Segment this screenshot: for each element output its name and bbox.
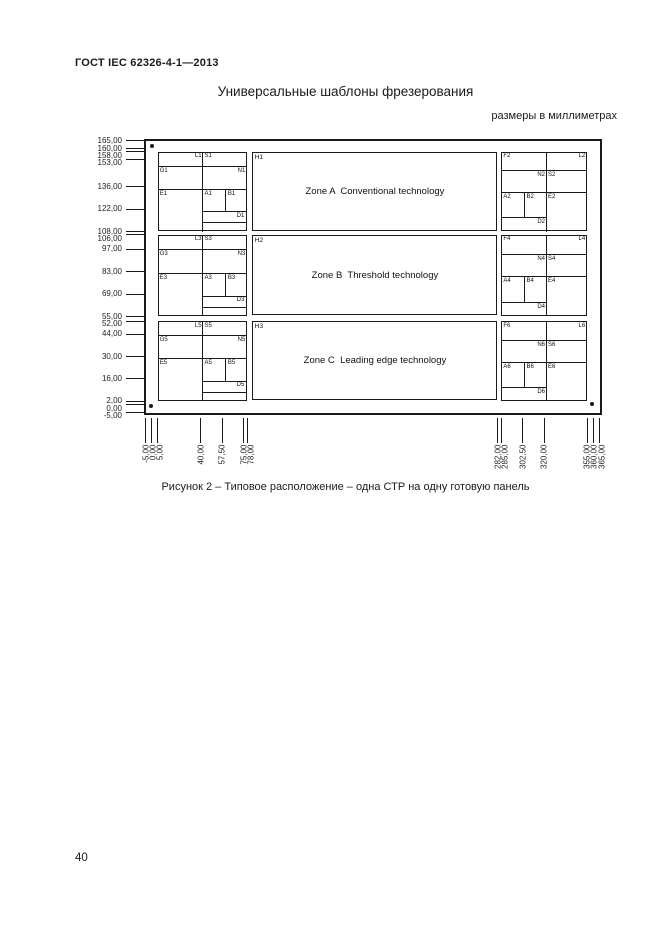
y-axis-label: 122,00 — [58, 205, 122, 213]
y-axis-tick — [126, 140, 145, 141]
y-axis-label: 97,00 — [58, 245, 122, 253]
y-axis-label: 69,00 — [58, 290, 122, 298]
y-axis-label: 153,00 — [58, 159, 122, 167]
y-axis-label: 30,00 — [58, 353, 122, 361]
coupon-box-label: B5 — [228, 360, 235, 367]
y-axis-label: 52,00 — [58, 320, 122, 328]
coupon-box-label: E5 — [160, 360, 167, 367]
coupon-box-label: N4 — [523, 256, 545, 263]
coupon-box-label: S2 — [548, 172, 555, 179]
coupon-box-label: B6 — [527, 364, 534, 371]
x-axis-tick — [222, 418, 223, 443]
coupon-box-label: F2 — [503, 153, 510, 160]
y-axis-tick — [126, 321, 145, 322]
coupon-line — [501, 362, 587, 363]
coupon-line — [225, 359, 226, 381]
x-axis-tick — [544, 418, 545, 443]
coupon-line — [524, 362, 525, 387]
coupon-line — [225, 273, 226, 296]
coupon-box-label: L3 — [180, 236, 202, 243]
coupon-line — [158, 249, 248, 250]
coupon-box-label: D6 — [523, 389, 545, 396]
coupon-line — [158, 166, 248, 167]
zone-corner-label: H3 — [255, 323, 263, 330]
coupon-box-label: L4 — [563, 236, 585, 243]
x-axis-label: 78,00 — [246, 445, 255, 481]
y-axis-label: 136,00 — [58, 183, 122, 191]
y-axis-tick — [126, 316, 145, 317]
coupon-box-label: G1 — [160, 168, 168, 175]
x-axis-tick — [200, 418, 201, 443]
coupon-box-label: E3 — [160, 275, 167, 282]
y-axis-tick — [126, 148, 145, 149]
figure-milling-template-diagram: 165,00160,00158,00153,00136,00122,00108,… — [0, 0, 661, 936]
y-axis-label: 83,00 — [58, 268, 122, 276]
y-axis-tick — [126, 378, 145, 379]
x-axis-tick — [522, 418, 523, 443]
coupon-box-label: S6 — [548, 342, 555, 349]
y-axis-tick — [126, 209, 145, 210]
coupon-box-label: D4 — [523, 304, 545, 311]
document-page: ГОСТ IEC 62326-4-1—2013 Универсальные ша… — [0, 0, 661, 936]
zone-label: Zone C Leading edge technology — [252, 355, 497, 366]
figure-caption: Рисунок 2 – Типовое расположение – одна … — [30, 481, 661, 493]
fiducial-mark-icon — [590, 402, 594, 406]
coupon-box-label: B2 — [527, 194, 534, 201]
x-axis-label: 40,00 — [196, 445, 205, 481]
y-axis-tick — [126, 412, 145, 413]
y-axis-tick — [126, 186, 145, 187]
coupon-line — [501, 192, 587, 193]
coupon-box-label: B3 — [228, 275, 235, 282]
coupon-line — [158, 273, 248, 274]
coupon-box-label: N3 — [223, 251, 245, 258]
fiducial-mark-icon — [150, 144, 154, 148]
y-axis-tick — [126, 271, 145, 272]
coupon-box-label: A5 — [205, 360, 212, 367]
coupon-line — [501, 170, 587, 171]
x-axis-label: 302,50 — [518, 445, 527, 481]
coupon-box-label: A3 — [205, 275, 212, 282]
coupon-box-label: S3 — [205, 236, 212, 243]
y-axis-label: -5,00 — [58, 412, 122, 420]
y-axis-tick — [126, 404, 145, 405]
coupon-line — [501, 254, 587, 255]
y-axis-tick — [126, 356, 145, 357]
coupon-box-label: A6 — [503, 364, 510, 371]
coupon-box-label: E6 — [548, 364, 555, 371]
y-axis-tick — [126, 249, 145, 250]
coupon-line — [203, 222, 248, 223]
coupon-line — [501, 276, 587, 277]
coupon-box-label: G3 — [160, 251, 168, 258]
y-axis-tick — [126, 401, 145, 402]
coupon-box-label: B1 — [228, 191, 235, 198]
coupon-line — [203, 392, 248, 393]
page-number: 40 — [75, 852, 88, 864]
zone-corner-label: H1 — [255, 154, 263, 161]
x-axis-label: 320,00 — [540, 445, 549, 481]
coupon-box-label: S5 — [205, 323, 212, 330]
fiducial-mark-icon — [149, 404, 153, 408]
y-axis-label: 106,00 — [58, 235, 122, 243]
coupon-box-label: F6 — [503, 323, 510, 330]
x-axis-label: 365,00 — [597, 445, 606, 481]
y-axis-tick — [126, 159, 145, 160]
coupon-box-label: D1 — [222, 213, 244, 220]
coupon-divider — [202, 321, 203, 401]
coupon-line — [524, 193, 525, 218]
x-axis-tick — [501, 418, 502, 443]
y-axis-tick — [126, 231, 145, 232]
y-axis-tick — [126, 334, 145, 335]
coupon-box-label: D2 — [523, 219, 545, 226]
zone-corner-label: H2 — [255, 237, 263, 244]
coupon-box-label: E2 — [548, 194, 555, 201]
y-axis-tick — [126, 294, 145, 295]
coupon-box-label: L6 — [563, 323, 585, 330]
coupon-divider — [202, 152, 203, 232]
coupon-box-label: S1 — [205, 153, 212, 160]
x-axis-tick — [497, 418, 498, 443]
x-axis-tick — [247, 418, 248, 443]
y-axis-label: 16,00 — [58, 375, 122, 383]
coupon-box-label: E4 — [548, 278, 555, 285]
x-axis-tick — [145, 418, 146, 443]
y-axis-tick — [126, 151, 145, 152]
coupon-box-label: N6 — [523, 342, 545, 349]
x-axis-tick — [151, 418, 152, 443]
coupon-box-label: A2 — [503, 194, 510, 201]
x-axis-tick — [587, 418, 588, 443]
x-axis-label: 285,00 — [500, 445, 509, 481]
coupon-line — [524, 277, 525, 303]
coupon-box-label: D3 — [222, 297, 244, 304]
coupon-box-label: A4 — [503, 278, 510, 285]
coupon-box-label: D5 — [222, 382, 244, 389]
coupon-box-label: F4 — [503, 236, 510, 243]
x-axis-tick — [599, 418, 600, 443]
coupon-divider — [202, 235, 203, 317]
coupon-box-label: L5 — [180, 323, 202, 330]
coupon-box-label: E1 — [160, 191, 167, 198]
zone-label: Zone B Threshold technology — [252, 270, 497, 281]
coupon-box-label: L2 — [563, 153, 585, 160]
coupon-line — [158, 189, 248, 190]
coupon-line — [158, 358, 248, 359]
coupon-box-label: A1 — [205, 191, 212, 198]
coupon-box-label: N1 — [223, 168, 245, 175]
x-axis-tick — [243, 418, 244, 443]
coupon-line — [203, 307, 248, 308]
x-axis-tick — [157, 418, 158, 443]
coupon-box-label: S4 — [548, 256, 555, 263]
x-axis-label: 57,50 — [218, 445, 227, 481]
y-axis-label: 44,00 — [58, 330, 122, 338]
coupon-box-label: N2 — [523, 172, 545, 179]
coupon-box-label: G5 — [160, 337, 168, 344]
coupon-box-label: B4 — [527, 278, 534, 285]
coupon-box-label: N5 — [223, 337, 245, 344]
coupon-box-label: L1 — [180, 153, 202, 160]
x-axis-label: 5,00 — [155, 445, 164, 481]
coupon-line — [225, 189, 226, 211]
y-axis-tick — [126, 234, 145, 235]
coupon-line — [158, 335, 248, 336]
zone-label: Zone A Conventional technology — [252, 186, 497, 197]
coupon-line — [501, 340, 587, 341]
x-axis-tick — [593, 418, 594, 443]
